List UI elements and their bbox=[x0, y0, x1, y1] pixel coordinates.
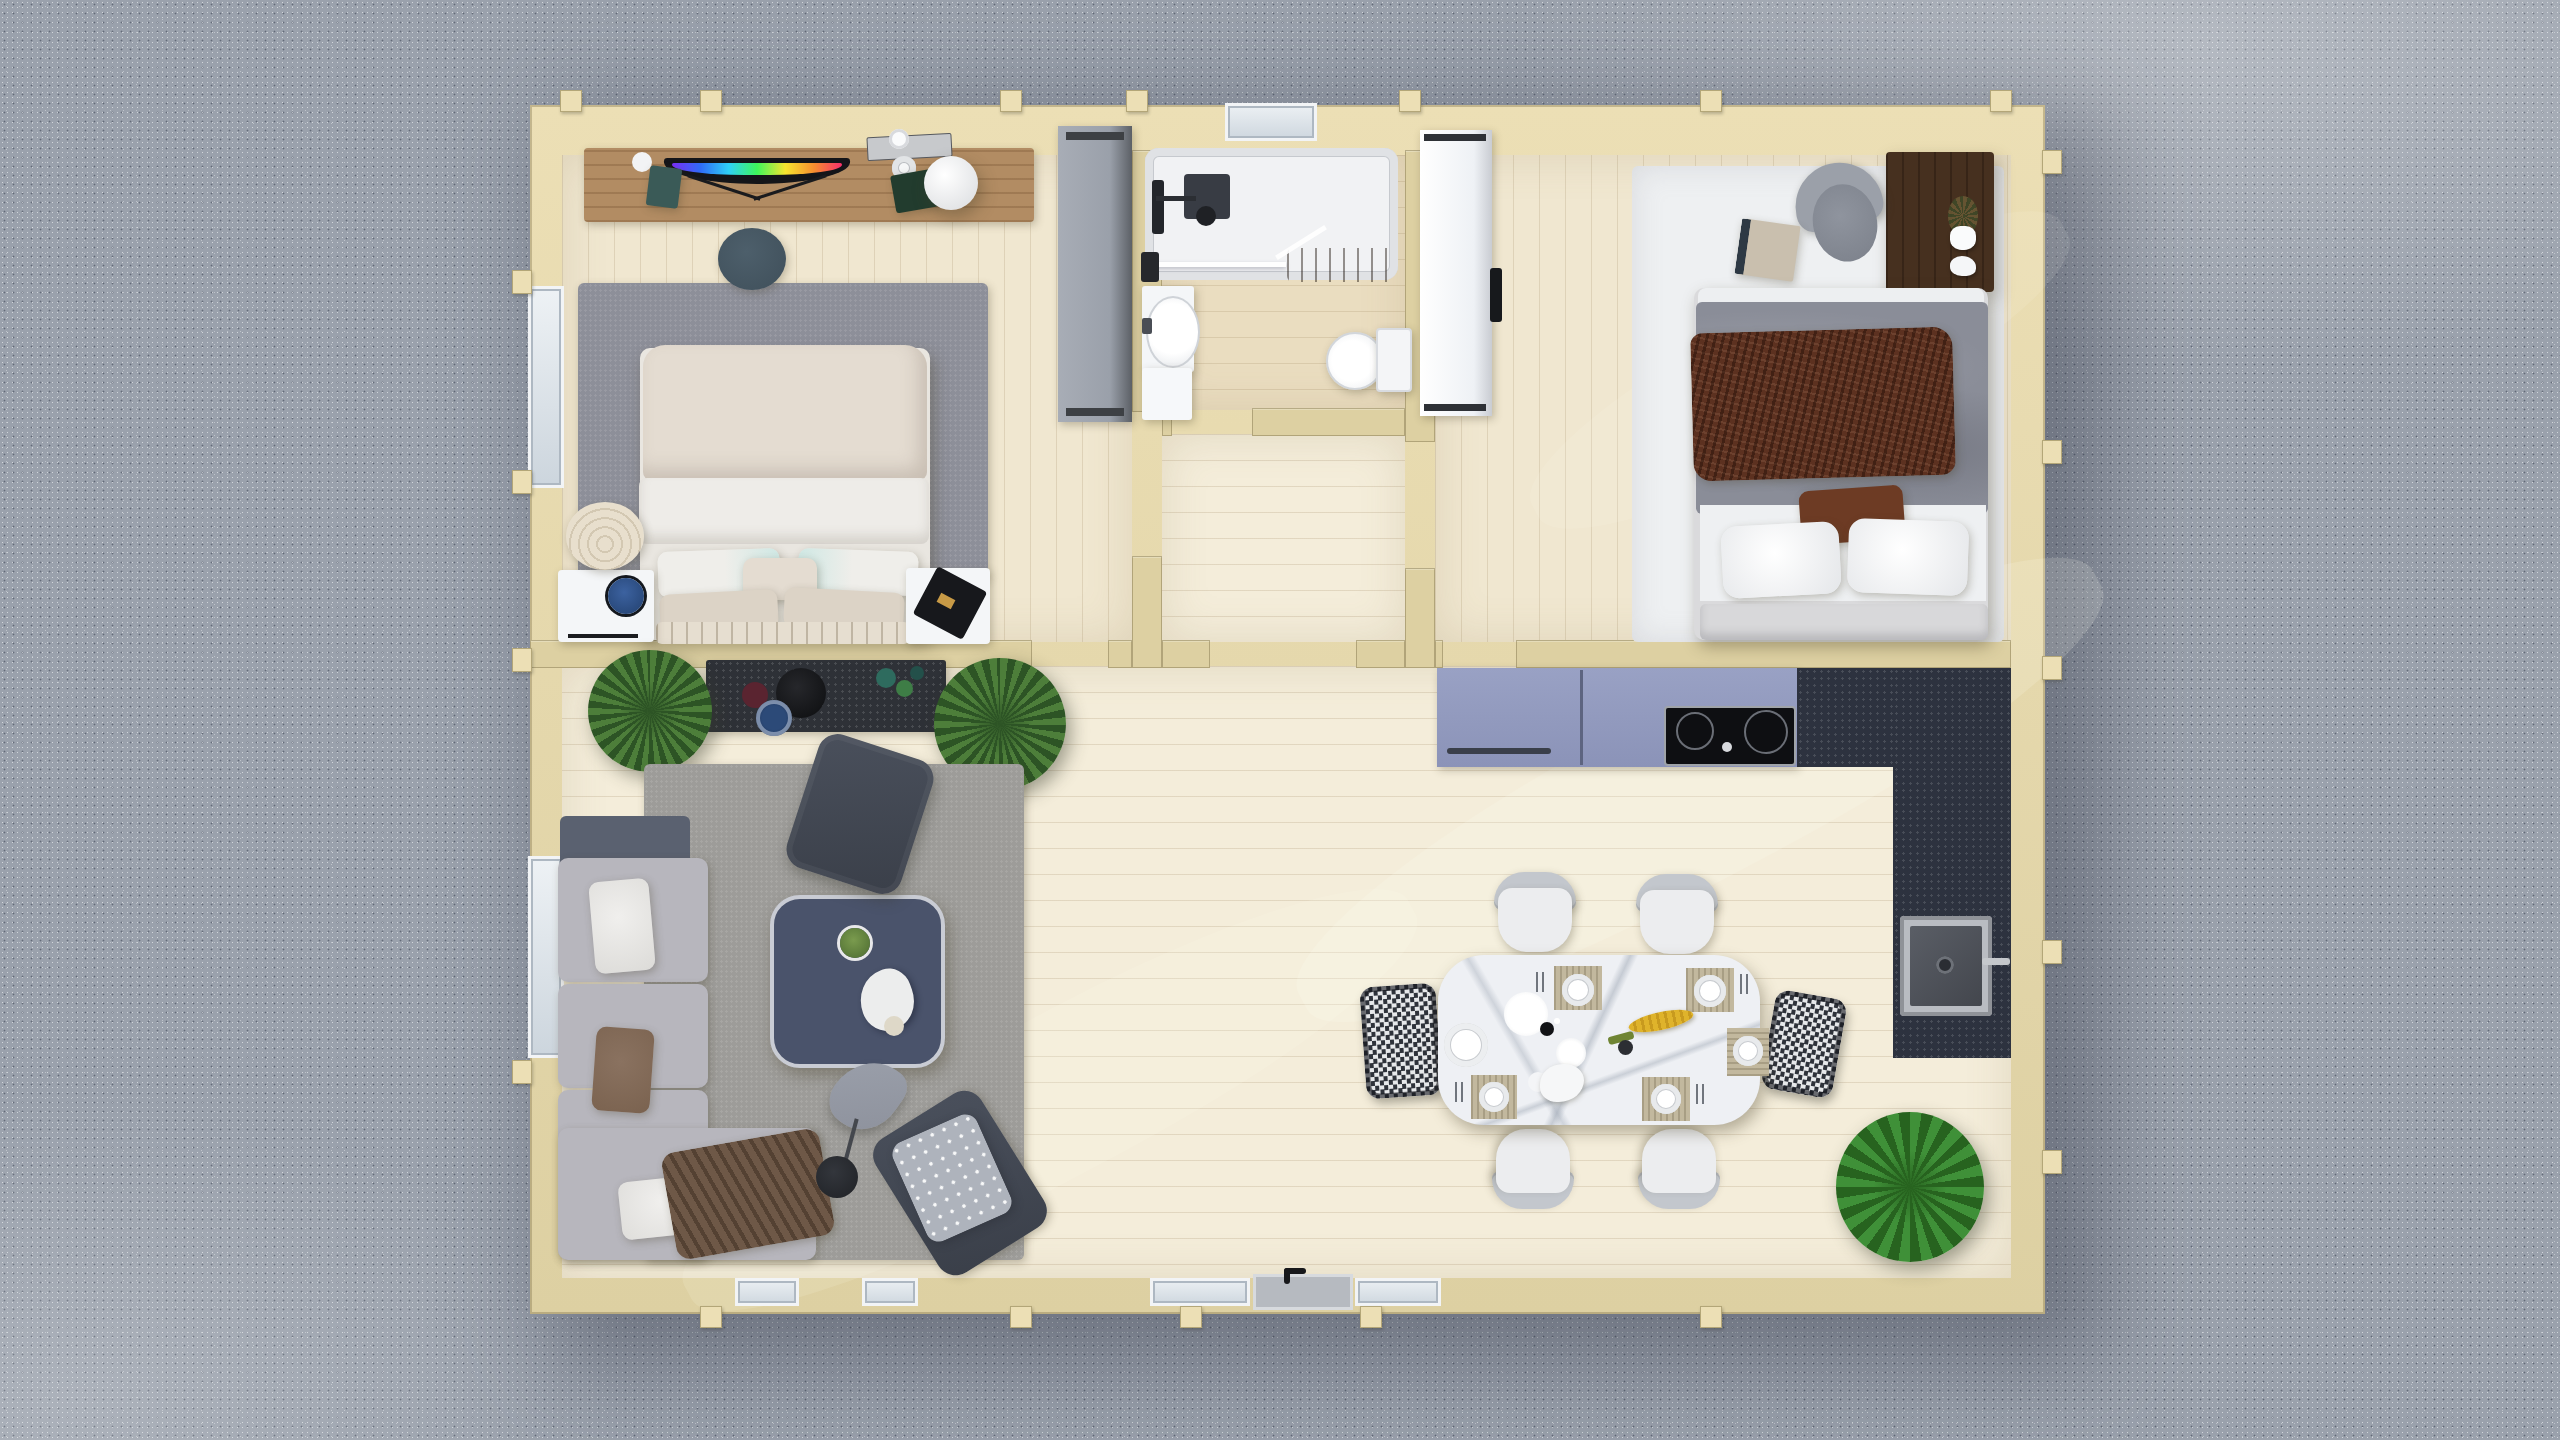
wall-joint bbox=[512, 470, 532, 494]
wall-joint bbox=[512, 1060, 532, 1084]
fridge-handle bbox=[1447, 748, 1551, 754]
teapot-figurine bbox=[1950, 226, 1976, 250]
bed-main-duvet bbox=[643, 345, 927, 480]
plant-core bbox=[620, 682, 680, 741]
shower-column bbox=[1152, 180, 1164, 234]
wall-hall-stub-left bbox=[1162, 640, 1210, 668]
wall-joint bbox=[512, 270, 532, 294]
desk bbox=[1886, 152, 1994, 292]
dining-chair-bottom-left bbox=[1489, 1127, 1577, 1209]
aerial-floorplan-render bbox=[0, 0, 2560, 1440]
moss-bowl bbox=[840, 928, 870, 958]
palm-plant bbox=[1836, 1112, 1984, 1262]
window-bathroom bbox=[1225, 103, 1317, 141]
shower-glass bbox=[1152, 262, 1286, 267]
plate bbox=[1651, 1084, 1681, 1114]
window-south-center bbox=[1150, 1278, 1250, 1306]
front-door bbox=[1253, 1274, 1353, 1310]
wall-joint bbox=[1010, 1306, 1032, 1328]
bed-headboard-ribbed bbox=[656, 622, 910, 644]
glass-vase bbox=[876, 668, 896, 688]
coffee-table bbox=[770, 895, 945, 1068]
chair-seat bbox=[1642, 1129, 1716, 1193]
wardrobe-handle bbox=[1490, 268, 1502, 322]
wall-joint bbox=[560, 90, 582, 112]
bath-cabinet bbox=[1142, 368, 1192, 420]
plate-large bbox=[1444, 1023, 1488, 1067]
glass-vase bbox=[896, 680, 913, 697]
wall-joint bbox=[1990, 90, 2012, 112]
wardrobe-white bbox=[1420, 130, 1492, 416]
plate bbox=[1479, 1082, 1509, 1112]
dining-chair-top-right bbox=[1633, 874, 1721, 956]
wall-bathroom-bedroom2-lower bbox=[1405, 568, 1435, 668]
window-main-bedroom bbox=[528, 286, 564, 488]
plant-core bbox=[968, 692, 1031, 755]
salt-shaker bbox=[1532, 1016, 1538, 1022]
hob-control bbox=[1722, 742, 1732, 752]
chair-seat bbox=[1498, 888, 1572, 952]
wall-joint bbox=[1399, 90, 1421, 112]
shower-arm bbox=[1156, 196, 1196, 201]
shower-duckboard bbox=[1287, 248, 1397, 282]
wall-bedroom-bathroom-lower bbox=[1132, 556, 1162, 668]
wardrobe-white-trim bbox=[1424, 404, 1486, 411]
wall-joint bbox=[1700, 90, 1722, 112]
ribbed-ottoman bbox=[566, 502, 644, 570]
wall-joint bbox=[1360, 1306, 1382, 1328]
cup bbox=[889, 129, 909, 149]
wardrobe-gray-trim bbox=[1066, 408, 1124, 416]
plate bbox=[1733, 1036, 1763, 1066]
floor-lamp-base bbox=[816, 1156, 858, 1198]
pepper-grinder bbox=[1540, 1022, 1554, 1036]
hob-burner-left bbox=[1676, 712, 1714, 750]
plate bbox=[1562, 974, 1594, 1006]
window-south-right bbox=[1355, 1278, 1441, 1306]
sofa-pillow-brown bbox=[591, 1026, 655, 1114]
teal-box bbox=[646, 165, 683, 209]
wall-joint bbox=[700, 90, 722, 112]
wall-joint bbox=[1180, 1306, 1202, 1328]
wall-joint bbox=[2042, 940, 2062, 964]
sink-drain bbox=[1936, 956, 1954, 974]
wall-hall-stub-right bbox=[1356, 640, 1405, 668]
dining-chair-top-left bbox=[1491, 872, 1579, 954]
wall-joint bbox=[1126, 90, 1148, 112]
glass-vase bbox=[910, 666, 924, 680]
wall-joint bbox=[2042, 440, 2062, 464]
kitchen-cabinet-seam bbox=[1580, 670, 1583, 765]
dining-chair-bottom-right bbox=[1635, 1127, 1723, 1209]
cat-figurine bbox=[1950, 256, 1976, 276]
book-on-rug bbox=[1734, 218, 1800, 282]
houndstooth-chair-left bbox=[1359, 982, 1443, 1099]
wall-joint bbox=[700, 1306, 722, 1328]
blue-patterned-bowl bbox=[756, 700, 792, 736]
basin-faucet bbox=[1142, 318, 1152, 334]
wall-stub bbox=[1435, 640, 1443, 668]
wall-bath-hall bbox=[1252, 408, 1405, 436]
flower-vase bbox=[1618, 1040, 1633, 1055]
blue-dish bbox=[608, 578, 644, 614]
agave-plant-left bbox=[588, 650, 712, 772]
plant-core bbox=[1874, 1151, 1945, 1223]
cutlery bbox=[1740, 974, 1752, 994]
black-towel bbox=[1141, 252, 1159, 282]
nightstand-slot bbox=[568, 634, 638, 638]
cutlery bbox=[1696, 1084, 1708, 1104]
sink-faucet bbox=[1982, 958, 2010, 965]
wardrobe-white-trim bbox=[1424, 134, 1486, 141]
wall-joint bbox=[2042, 656, 2062, 680]
knit-throw bbox=[1690, 327, 1956, 482]
bed2-pillow-right bbox=[1847, 518, 1970, 596]
toilet-tank bbox=[1376, 328, 1412, 392]
salt-shaker bbox=[1554, 1018, 1560, 1024]
window-south-left bbox=[735, 1278, 799, 1306]
chair-seat bbox=[1496, 1129, 1570, 1193]
bed2-pillow-left bbox=[1720, 521, 1842, 599]
window-south-left2 bbox=[862, 1278, 918, 1306]
hob-burner-right bbox=[1744, 710, 1788, 754]
sofa-pillow-white bbox=[588, 878, 656, 975]
cutlery bbox=[1455, 1082, 1467, 1102]
wardrobe-gray bbox=[1058, 126, 1132, 422]
wall-joint bbox=[2042, 1150, 2062, 1174]
wall-joint bbox=[1700, 1306, 1722, 1328]
wardrobe-gray-trim bbox=[1066, 132, 1124, 140]
chair-seat bbox=[1640, 890, 1714, 954]
shower-head bbox=[1196, 206, 1216, 226]
decor-cup bbox=[884, 1016, 904, 1036]
bed-main-sheet bbox=[639, 478, 929, 544]
cutlery bbox=[1536, 972, 1548, 992]
bed2-headboard-bench bbox=[1700, 604, 1988, 640]
slate-pouf bbox=[718, 228, 786, 290]
washbasin bbox=[1146, 296, 1200, 368]
wall-stub bbox=[1108, 640, 1132, 668]
wall-joint bbox=[2042, 150, 2062, 174]
plate bbox=[1694, 975, 1726, 1007]
wall-joint bbox=[512, 648, 532, 672]
sphere-lamp bbox=[924, 156, 978, 210]
room-hallway bbox=[1162, 434, 1405, 642]
wall-bedroom2-kitchen bbox=[1516, 640, 2011, 668]
wall-joint bbox=[1000, 90, 1022, 112]
